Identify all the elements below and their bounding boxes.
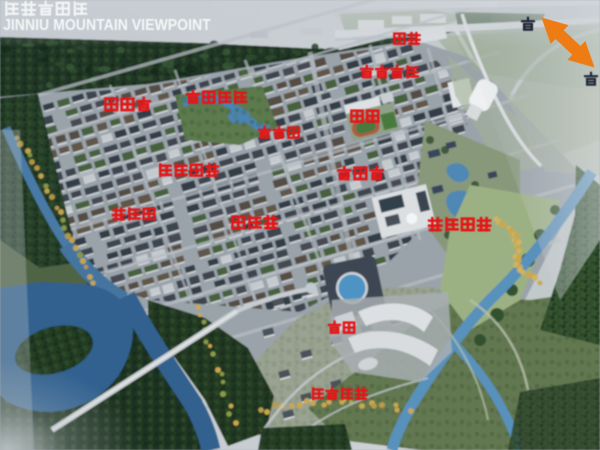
svg-text:JINNIU MOUNTAIN VIEWPOINT: JINNIU MOUNTAIN VIEWPOINT	[3, 16, 211, 34]
